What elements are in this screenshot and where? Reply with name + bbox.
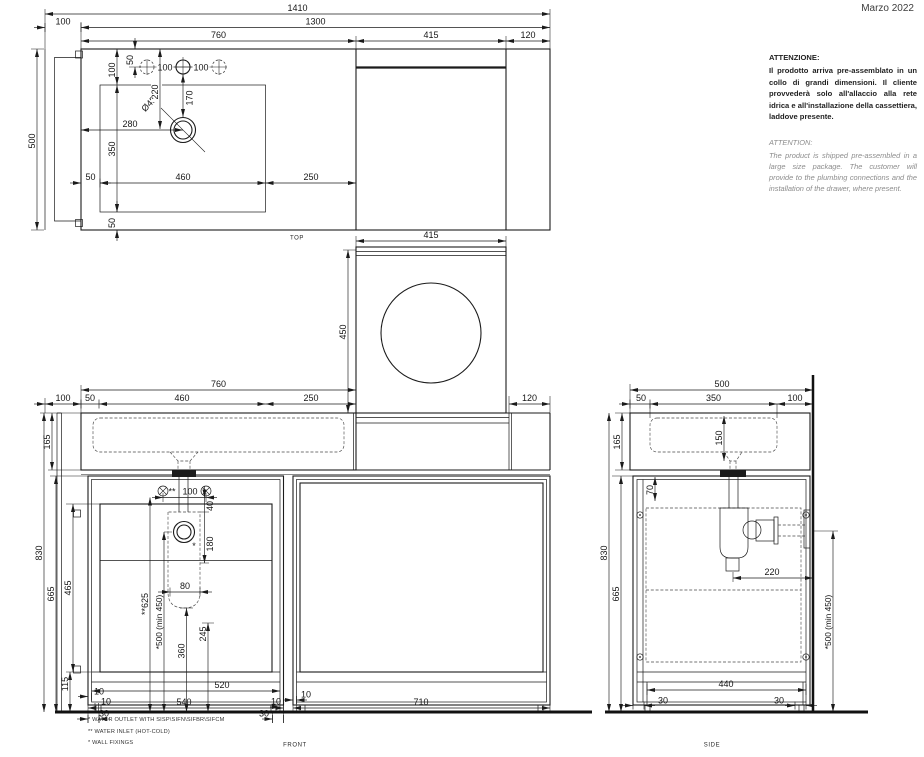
dim-500: 500 xyxy=(714,379,729,389)
warning-italian: ATTENZIONE: Il prodotto arriva pre-assem… xyxy=(769,52,917,122)
dim-30-left: 30 xyxy=(658,696,668,706)
right-cabinet-bottom-lines xyxy=(297,672,547,682)
dim-100: 100 xyxy=(55,393,70,403)
dim-30-right: 30 xyxy=(774,696,784,706)
technical-drawing-page: { "date": "Marzo 2022", "warning_it": { … xyxy=(0,0,924,757)
dim-1410: 1410 xyxy=(287,3,307,13)
dim-220: 220 xyxy=(764,567,779,577)
right-cabinet-open-bay xyxy=(300,483,543,672)
dim-1300: 1300 xyxy=(305,17,325,27)
outlet-pipe-dashed xyxy=(778,525,806,536)
wall-bracket-front xyxy=(57,413,62,712)
dim-70: 70 xyxy=(645,485,655,495)
warning-italian-body: Il prodotto arriva pre-assemblato in un … xyxy=(769,65,917,122)
siphon-bottom-stub xyxy=(726,558,739,571)
extension-lines xyxy=(31,9,550,230)
dim-10b: 10 xyxy=(101,697,111,707)
washer-hose-hole xyxy=(381,283,481,383)
cabinet-inner xyxy=(637,480,806,703)
dim-440: 440 xyxy=(718,679,733,689)
dim-80: 80 xyxy=(180,581,190,591)
outlet-pipe-flange xyxy=(774,517,778,544)
dim-760: 760 xyxy=(211,379,226,389)
dim-100-vertical: 100 xyxy=(107,62,117,77)
right-cabinet-outline xyxy=(293,476,550,705)
drain-pipe xyxy=(729,477,738,508)
extension-lines xyxy=(343,236,550,413)
drain-flange xyxy=(172,470,196,477)
dim-450: 450 xyxy=(338,324,348,339)
dim-540: 540 xyxy=(176,697,191,707)
washer-niche-sides xyxy=(354,413,512,470)
basin-bowl-dashed xyxy=(93,418,344,452)
outlet-asterisk: * xyxy=(192,541,196,551)
view-label-top: TOP xyxy=(290,236,304,242)
dim-hole-spacing-right: 100 xyxy=(193,63,208,73)
basin-top-outline xyxy=(81,413,356,470)
outlet-pipe xyxy=(756,520,774,541)
siphon-body-dashed xyxy=(168,512,200,608)
washer-tower-sides xyxy=(356,49,506,230)
document-date: Marzo 2022 xyxy=(861,3,914,14)
dim-665: 665 xyxy=(46,586,56,601)
dim-10c: 10 xyxy=(271,697,281,707)
dim-120: 120 xyxy=(522,393,537,403)
dim-665: 665 xyxy=(611,586,621,601)
dim-350: 350 xyxy=(107,141,117,156)
footnotes: * WATER OUTLET WITH SISP\SIFN\SIFBR\SIFC… xyxy=(88,715,224,750)
dim-115: 115 xyxy=(60,677,70,691)
warning-english-title: ATTENTION: xyxy=(769,137,917,148)
countertop-outline xyxy=(81,49,550,230)
dim-830: 830 xyxy=(599,545,609,560)
dim-100: 100 xyxy=(787,393,802,403)
dim-150: 150 xyxy=(714,430,724,445)
front-view: * 760 100 50 460 250 165 830 665 465 xyxy=(34,379,592,749)
basin-funnel-dashed xyxy=(724,452,742,470)
faucet-hole-cross xyxy=(173,57,193,77)
dim-250: 250 xyxy=(303,172,318,182)
dim-415: 415 xyxy=(423,30,438,40)
dim-50-bottom: 50 xyxy=(107,218,117,228)
footnote-water-inlet: ** WATER INLET (HOT-COLD) xyxy=(88,727,224,739)
dim-165: 165 xyxy=(612,434,622,449)
view-label-side: SIDE xyxy=(704,743,720,749)
warning-english: ATTENTION: The product is shipped pre-as… xyxy=(769,137,917,195)
dim-10a: 10 xyxy=(94,687,104,697)
dim-280: 280 xyxy=(122,119,137,129)
pipe-elbow xyxy=(743,521,761,539)
dim-120: 120 xyxy=(520,30,535,40)
panel-outline xyxy=(356,247,506,413)
worktop-right xyxy=(356,413,550,470)
dim-520: 520 xyxy=(214,680,229,690)
inlet-marks: ** xyxy=(168,487,176,497)
dim-360: 360 xyxy=(177,643,187,658)
dim-350: 350 xyxy=(706,393,721,403)
drain-flange xyxy=(720,470,746,477)
dim-250: 250 xyxy=(303,393,318,403)
warning-italian-title: ATTENZIONE: xyxy=(769,52,917,63)
dim-500min: *500 (min 450) xyxy=(823,595,833,650)
dim-460: 460 xyxy=(175,172,190,182)
wall-fixing-block-top xyxy=(74,510,81,517)
panel-view: 415 450 120 xyxy=(338,230,550,413)
dim-500: 500 xyxy=(27,133,37,148)
dim-inlet-100: 100 xyxy=(182,487,197,497)
dim-830: 830 xyxy=(34,545,44,560)
dim-10d: 10 xyxy=(301,690,311,700)
top-view: 100 100 Ø45 1410 1300 100 760 415 120 50… xyxy=(27,3,550,242)
warning-english-body: The product is shipped pre-assembled in … xyxy=(769,150,917,194)
right-cabinet-inner xyxy=(297,480,547,703)
dim-625: **625 xyxy=(140,593,150,615)
basin-funnel-dashed xyxy=(170,452,198,470)
footnote-wall-fixings: * WALL FIXINGS xyxy=(88,738,224,750)
fixing-screws xyxy=(637,512,809,660)
cabinet-outline xyxy=(633,476,810,705)
dim-460: 460 xyxy=(174,393,189,403)
dim-50: 50 xyxy=(636,393,646,403)
footnote-water-outlet: * WATER OUTLET WITH SISP\SIFN\SIFBR\SIFC… xyxy=(88,715,224,727)
dim-500min: *500 (min 450) xyxy=(154,595,164,650)
left-cabinet-bottom-lines xyxy=(92,672,281,682)
worktop-edge-lines xyxy=(356,418,509,424)
dim-100-left: 100 xyxy=(55,17,70,27)
dim-50-left: 50 xyxy=(85,172,95,182)
dim-170: 170 xyxy=(185,90,195,105)
dim-50: 50 xyxy=(85,393,95,403)
view-label-front: FRONT xyxy=(283,743,307,749)
dim-50-top: 50 xyxy=(125,55,135,65)
dim-165: 165 xyxy=(42,434,52,449)
dim-40: 40 xyxy=(205,501,215,511)
dim-710: 710 xyxy=(413,697,428,707)
dim-180: 180 xyxy=(205,536,215,551)
dim-465: 465 xyxy=(63,580,73,595)
dim-245: 245 xyxy=(198,626,208,641)
water-outlet-hole-inner xyxy=(177,525,191,539)
dim-415: 415 xyxy=(423,230,438,240)
wall-bracket xyxy=(55,58,82,222)
dim-220: 220 xyxy=(150,84,160,99)
side-view: 500 50 350 100 165 150 70 830 665 220 *5… xyxy=(599,375,868,749)
panel-top-edges xyxy=(356,252,506,256)
dim-760: 760 xyxy=(211,30,226,40)
